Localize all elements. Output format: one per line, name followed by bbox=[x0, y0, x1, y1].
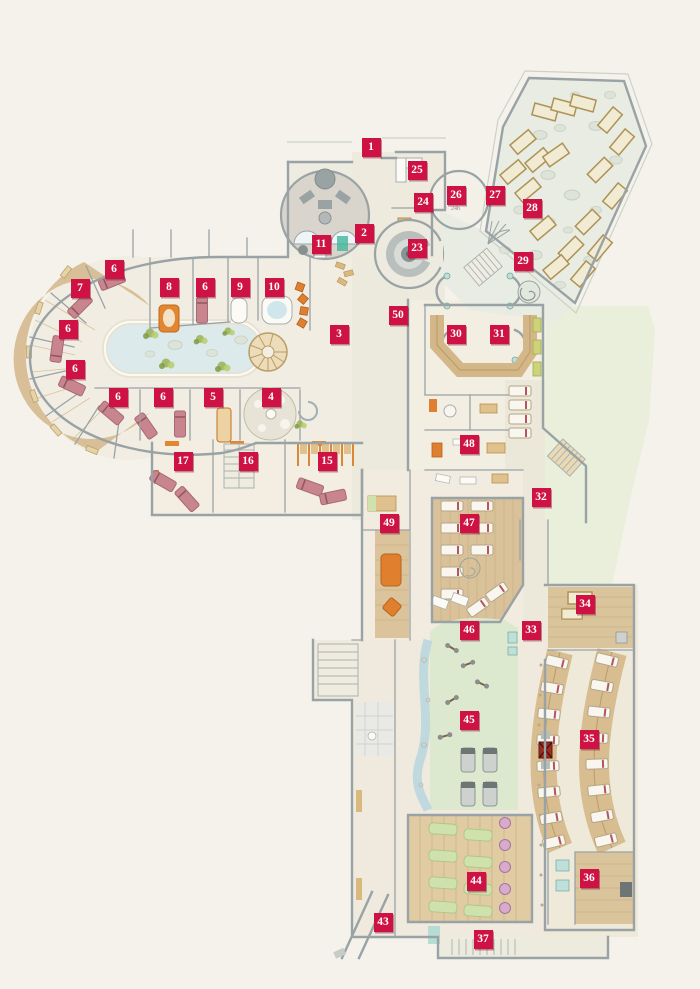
floor-marker-43: 43 bbox=[374, 913, 393, 932]
floor-marker-49: 49 bbox=[380, 514, 399, 533]
floor-marker-44: 44 bbox=[467, 872, 486, 891]
floor-marker-11: 11 bbox=[312, 235, 331, 254]
floor-marker-3: 3 bbox=[330, 325, 349, 344]
floor-marker-15: 15 bbox=[318, 452, 337, 471]
floor-marker-6: 6 bbox=[196, 278, 215, 297]
floor-marker-7: 7 bbox=[71, 279, 90, 298]
floor-marker-8: 8 bbox=[160, 278, 179, 297]
floor-marker-6: 6 bbox=[105, 260, 124, 279]
floor-marker-46: 46 bbox=[460, 621, 479, 640]
floor-marker-17: 17 bbox=[174, 452, 193, 471]
floor-marker-28: 28 bbox=[523, 199, 542, 218]
floor-marker-10: 10 bbox=[265, 278, 284, 297]
floor-marker-48: 48 bbox=[460, 435, 479, 454]
floor-marker-27: 27 bbox=[486, 186, 505, 205]
floor-marker-45: 45 bbox=[460, 711, 479, 730]
floor-plan: 24h bbox=[0, 0, 700, 989]
floor-marker-6: 6 bbox=[154, 388, 173, 407]
floor-marker-4: 4 bbox=[262, 388, 281, 407]
floor-marker-29: 29 bbox=[514, 252, 533, 271]
floor-marker-50: 50 bbox=[389, 306, 408, 325]
floor-marker-33: 33 bbox=[522, 621, 541, 640]
floor-marker-37: 37 bbox=[474, 930, 493, 949]
floor-marker-31: 31 bbox=[490, 325, 509, 344]
floor-marker-6: 6 bbox=[109, 388, 128, 407]
floor-marker-23: 23 bbox=[408, 239, 427, 258]
floor-marker-2: 2 bbox=[355, 224, 374, 243]
floor-marker-6: 6 bbox=[59, 320, 78, 339]
floor-marker-36: 36 bbox=[580, 869, 599, 888]
floor-marker-16: 16 bbox=[239, 452, 258, 471]
floor-marker-9: 9 bbox=[231, 278, 250, 297]
floor-marker-26: 26 bbox=[447, 186, 466, 205]
floor-marker-25: 25 bbox=[408, 161, 427, 180]
floor-marker-1: 1 bbox=[362, 138, 381, 157]
floor-marker-24: 24 bbox=[414, 193, 433, 212]
floor-marker-32: 32 bbox=[532, 488, 551, 507]
floor-marker-35: 35 bbox=[580, 730, 599, 749]
floor-marker-5: 5 bbox=[204, 388, 223, 407]
marker-layer: 1234566666678910111516172324252627282930… bbox=[0, 0, 700, 989]
floor-marker-6: 6 bbox=[66, 360, 85, 379]
floor-marker-47: 47 bbox=[460, 514, 479, 533]
floor-marker-34: 34 bbox=[576, 595, 595, 614]
floor-marker-30: 30 bbox=[447, 325, 466, 344]
